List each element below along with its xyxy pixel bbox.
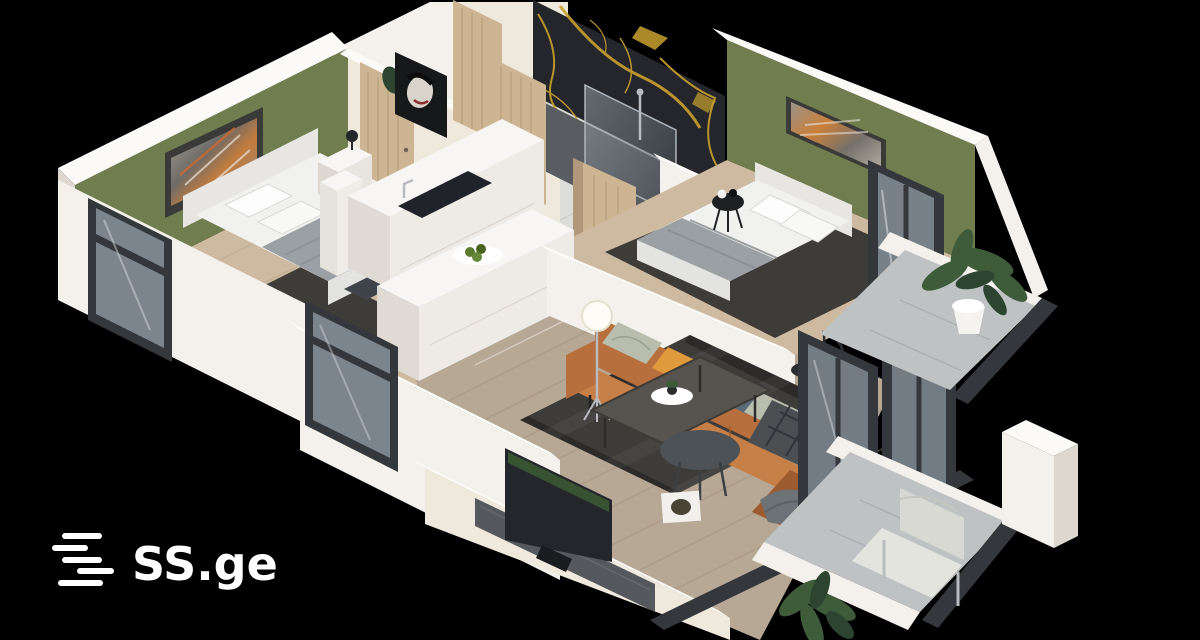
- floorplan-scene: SS.ge: [0, 0, 1200, 640]
- picture-frame-floor: [661, 491, 701, 524]
- logo-text: SS.ge: [132, 537, 278, 591]
- table-lamp-icon: [346, 130, 358, 142]
- white-block: [1002, 420, 1078, 548]
- floorplan-image: SS.ge: [0, 0, 1200, 640]
